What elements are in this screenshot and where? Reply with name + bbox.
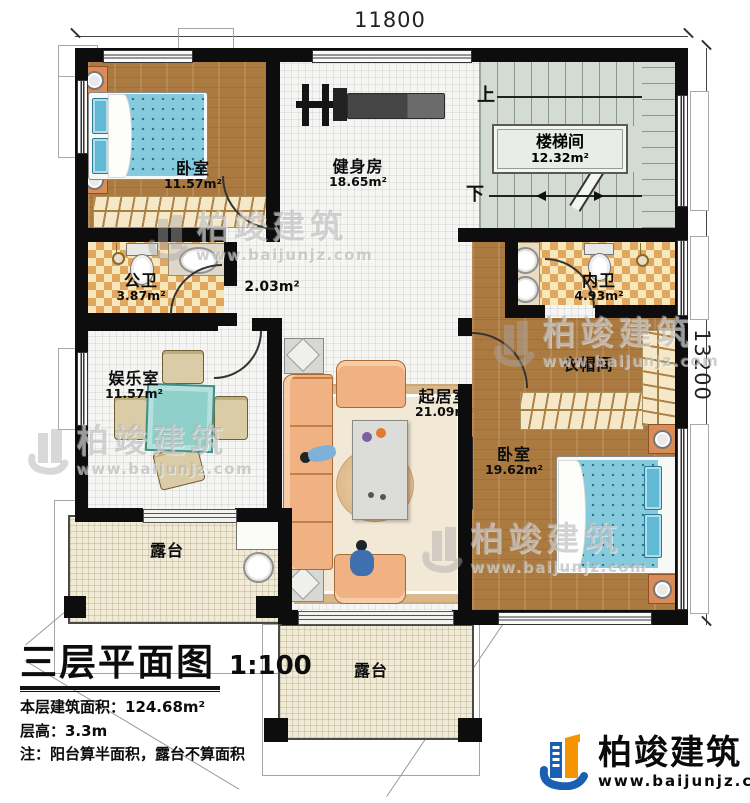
wall-living-south xyxy=(282,610,298,625)
room-area: 21.09m² xyxy=(396,405,492,419)
room-area: 2.03m² xyxy=(232,280,312,295)
room-area: 12.32m² xyxy=(531,151,589,164)
stair-down-line xyxy=(489,195,642,197)
flower-decor xyxy=(376,428,386,438)
room-name: 公卫 xyxy=(98,272,184,289)
terrace-post xyxy=(64,596,86,618)
room-name: 娱乐室 xyxy=(88,370,180,387)
title-block: 三层平面图 1:100 本层建筑面积：124.68m² 层高：3.3m 注：阳台… xyxy=(20,644,312,763)
room-label-bedroom-1: 卧室 11.57m² xyxy=(148,160,238,191)
bed-pillow xyxy=(644,466,662,510)
note-line: 注：阳台算半面积，露台不算面积 xyxy=(20,746,312,763)
round-basin-icon xyxy=(243,552,274,583)
brand-url: www.baijunjz.com xyxy=(598,774,750,789)
wall-stairwell-south xyxy=(458,228,688,242)
bed-pillow xyxy=(92,138,109,174)
window-sill xyxy=(690,91,709,211)
top-dimension-line xyxy=(75,36,688,37)
stair-landing xyxy=(642,62,675,228)
window xyxy=(677,95,688,207)
stair-up-line xyxy=(497,96,642,98)
gym-bench xyxy=(347,93,445,119)
gym-barbell xyxy=(296,101,336,108)
stair-arrow-left xyxy=(536,191,546,201)
wardrobe-hangers xyxy=(520,392,644,430)
stair-down-label: 下 xyxy=(466,186,484,204)
dimension-right-label: 13200 xyxy=(690,300,714,430)
table-decor xyxy=(380,494,386,500)
stair-treads-lower xyxy=(480,172,642,228)
stair-up-label: 上 xyxy=(477,87,495,105)
wall-entertainment-south xyxy=(75,508,143,522)
room-label-hall: 2.03m² xyxy=(232,280,312,295)
stair-arrow-right xyxy=(594,191,604,201)
window xyxy=(498,612,652,625)
lamp-icon xyxy=(653,430,672,449)
pendant-lamp-icon xyxy=(636,254,649,267)
wall-entertainment-north xyxy=(75,318,218,331)
table-decor xyxy=(368,492,374,498)
wall-cloakroom-north xyxy=(595,305,688,318)
window xyxy=(312,50,472,63)
watermark-logo-icon xyxy=(26,427,70,475)
plan-title: 三层平面图 xyxy=(20,644,215,681)
sliding-door xyxy=(298,611,454,625)
room-name: 楼梯间 xyxy=(536,134,584,151)
floor-area-line: 本层建筑面积：124.68m² xyxy=(20,699,312,716)
roof-outline xyxy=(178,28,234,49)
gym-weight-stack xyxy=(333,88,347,121)
room-name: 内卫 xyxy=(556,272,642,289)
wardrobe-rod xyxy=(520,409,642,411)
terrace-post xyxy=(256,596,278,618)
window xyxy=(677,428,688,610)
dimension-top-label: 11800 xyxy=(310,8,470,32)
window-sill xyxy=(690,424,709,614)
stair-treads-upper xyxy=(480,62,642,126)
title-underline xyxy=(20,686,220,692)
room-label-terrace-s: 露台 xyxy=(336,662,406,679)
window xyxy=(77,80,88,154)
brand-logo-icon xyxy=(536,734,590,790)
room-label-terrace-sw: 露台 xyxy=(132,542,202,559)
wardrobe-rod xyxy=(657,330,659,424)
plan-scale: 1:100 xyxy=(229,652,312,681)
pendant-lamp-icon xyxy=(112,252,125,265)
room-label-entertainment: 娱乐室 11.57m² xyxy=(88,370,180,401)
room-label-gym: 健身房 18.65m² xyxy=(308,158,408,189)
room-label-ensuite-bath: 内卫 4.93m² xyxy=(556,272,642,303)
room-name: 露台 xyxy=(132,542,202,559)
room-name: 健身房 xyxy=(308,158,408,175)
wall-bedroom1-south xyxy=(75,228,226,242)
floor-plan-canvas: 11800 13200 上 下 楼梯间 12.32m² xyxy=(0,0,750,803)
room-area: 4.93m² xyxy=(556,289,642,303)
chair xyxy=(214,396,248,440)
room-label-cloakroom: 衣帽间 xyxy=(538,356,638,373)
bed-blanket xyxy=(558,460,586,570)
bed-blanket xyxy=(108,94,132,178)
wall-bedroom2-west xyxy=(458,318,472,336)
bed-pillow xyxy=(644,514,662,558)
room-label-living: 起居室 21.09m² xyxy=(396,388,492,419)
room-name: 衣帽间 xyxy=(538,356,638,373)
sliding-door xyxy=(143,509,237,523)
room-name: 起居室 xyxy=(396,388,492,405)
wall-living-west xyxy=(278,508,292,624)
brand-name: 柏竣建筑 xyxy=(598,736,750,770)
lamp-cord xyxy=(640,243,641,255)
wall-entertainment-east xyxy=(267,318,282,514)
wall-entertainment-south xyxy=(235,508,282,522)
floor-height-line: 层高：3.3m xyxy=(20,723,312,740)
wall-ensuite-west xyxy=(505,242,518,318)
wardrobe-hangers xyxy=(642,330,676,426)
room-area: 3.87m² xyxy=(98,289,184,303)
terrace-post xyxy=(458,718,482,742)
person-figure xyxy=(350,550,374,576)
window xyxy=(103,50,193,63)
flower-decor xyxy=(362,432,372,442)
brand-text: 柏竣建筑 www.baijunjz.com xyxy=(598,736,750,789)
window xyxy=(677,240,688,316)
room-area: 11.57m² xyxy=(148,177,238,191)
lamp-cord xyxy=(116,243,117,253)
brand-logo: 柏竣建筑 www.baijunjz.com xyxy=(536,734,750,790)
room-label-bedroom-2: 卧室 19.62m² xyxy=(468,446,560,477)
bed-pillow xyxy=(92,98,109,134)
stairwell-label-box: 楼梯间 12.32m² xyxy=(492,124,628,174)
chair xyxy=(114,396,148,440)
title-row: 三层平面图 1:100 xyxy=(20,644,312,681)
room-area: 19.62m² xyxy=(468,463,560,477)
room-area: 18.65m² xyxy=(308,175,408,189)
room-label-public-bath: 公卫 3.87m² xyxy=(98,272,184,303)
room-name: 露台 xyxy=(336,662,406,679)
lamp-icon xyxy=(653,580,672,599)
room-name: 卧室 xyxy=(148,160,238,177)
room-name: 卧室 xyxy=(468,446,560,463)
window xyxy=(77,352,88,426)
room-area: 11.57m² xyxy=(88,387,180,401)
